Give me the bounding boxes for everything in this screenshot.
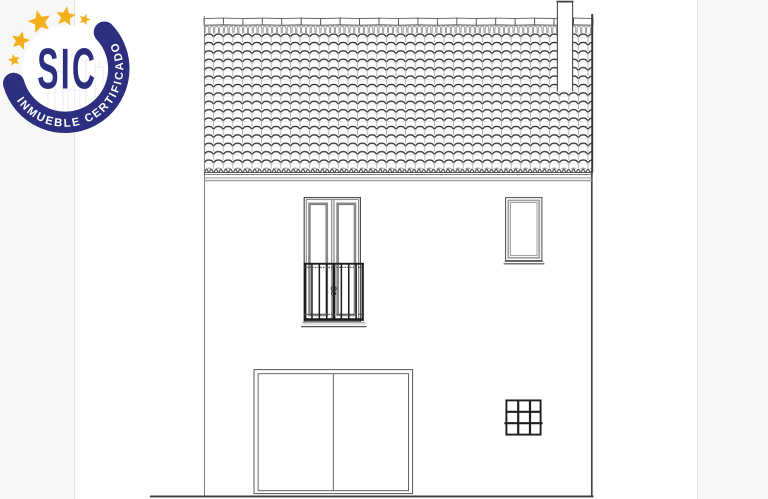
svg-text:SIC: SIC bbox=[37, 37, 97, 101]
